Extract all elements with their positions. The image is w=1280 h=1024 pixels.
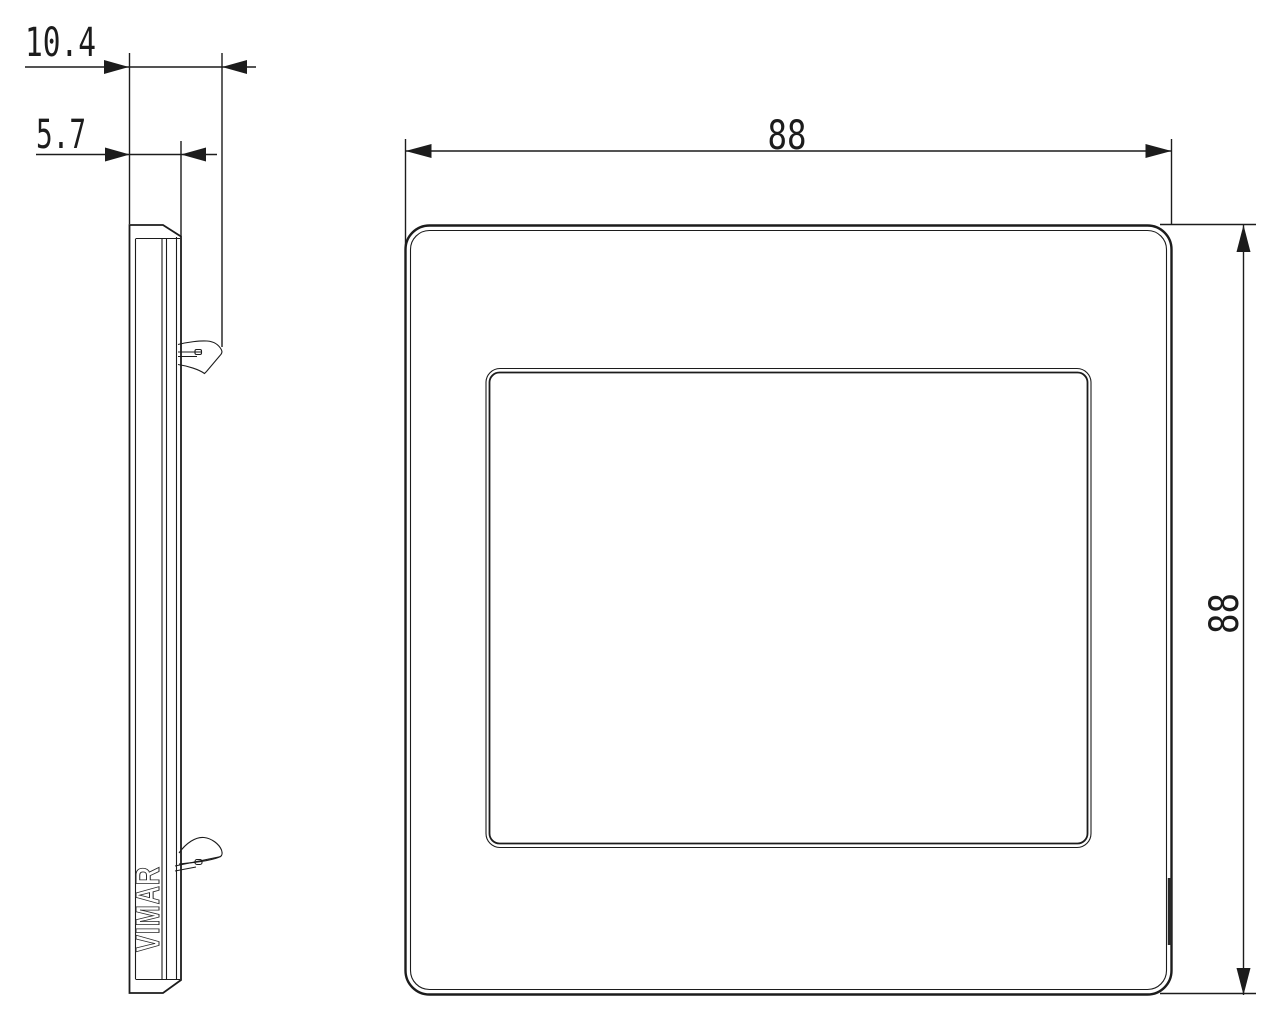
mounting-clip-top <box>178 341 222 374</box>
faceplate-opening <box>486 369 1091 848</box>
arrowhead-left-icon <box>181 148 206 162</box>
arrowhead-right-icon <box>105 148 130 162</box>
arrowhead-right-icon <box>104 60 129 74</box>
dimension-plate-depth-label: 5.7 <box>36 112 86 158</box>
arrowhead-down-icon <box>1237 968 1251 995</box>
vimar-logo: VIMAR <box>129 866 166 952</box>
arrowhead-right-icon <box>1146 144 1172 158</box>
arrowhead-left-icon <box>222 60 247 74</box>
dimension-plate-depth: 5.7 <box>36 112 217 236</box>
front-view: 88 88 <box>406 113 1257 995</box>
side-view: 10.4 5.7 <box>25 20 256 993</box>
clip-detail-line <box>175 867 196 871</box>
opening-outer-edge <box>486 369 1091 848</box>
drawing-canvas: 10.4 5.7 <box>0 0 1280 1024</box>
arrowhead-up-icon <box>1237 225 1251 252</box>
plate-dimension-drawing: 10.4 5.7 <box>0 0 1280 1024</box>
faceplate-inner-edge <box>411 231 1167 990</box>
dimension-total-depth: 10.4 <box>25 20 256 347</box>
dimension-width: 88 <box>406 113 1172 253</box>
dimension-height-label: 88 <box>1202 593 1248 634</box>
arrowhead-left-icon <box>406 144 432 158</box>
faceplate-outer-edge <box>406 226 1172 995</box>
mounting-clip-bottom <box>175 837 222 871</box>
clip-outline <box>178 341 222 374</box>
release-notch <box>1168 878 1172 945</box>
opening-inner-edge <box>490 373 1088 844</box>
faceplate-outline <box>406 226 1172 995</box>
dimension-height: 88 <box>1160 225 1256 996</box>
dimension-width-label: 88 <box>768 113 807 159</box>
dimension-total-depth-label: 10.4 <box>25 20 96 66</box>
